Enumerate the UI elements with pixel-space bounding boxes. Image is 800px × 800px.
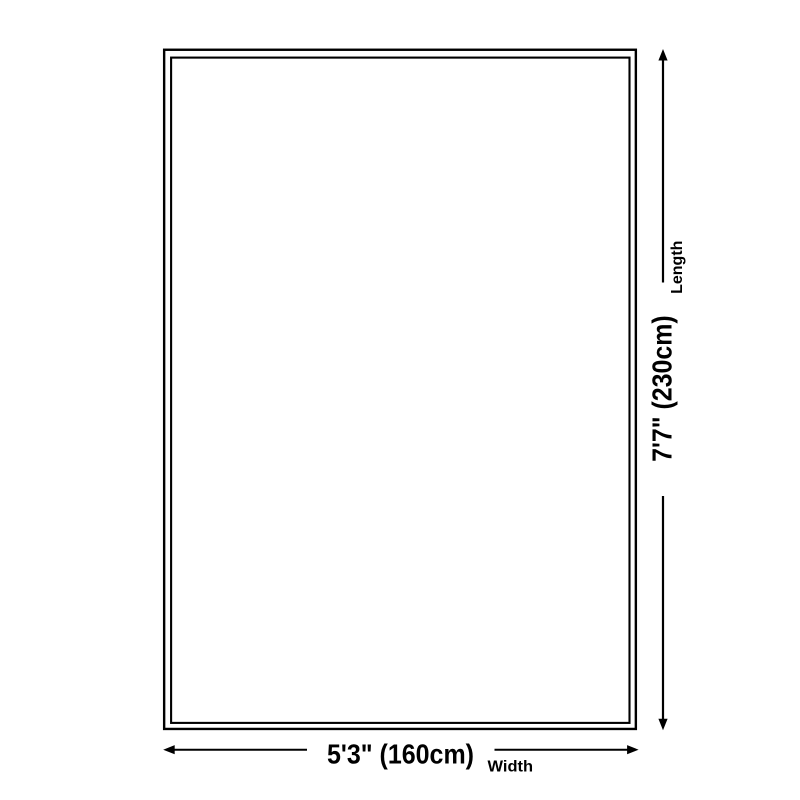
svg-text:Length: Length [669, 241, 686, 294]
svg-text:7'7" (230cm): 7'7" (230cm) [647, 315, 678, 462]
svg-text:5'3" (160cm): 5'3" (160cm) [327, 738, 474, 769]
svg-text:Width: Width [488, 759, 534, 776]
